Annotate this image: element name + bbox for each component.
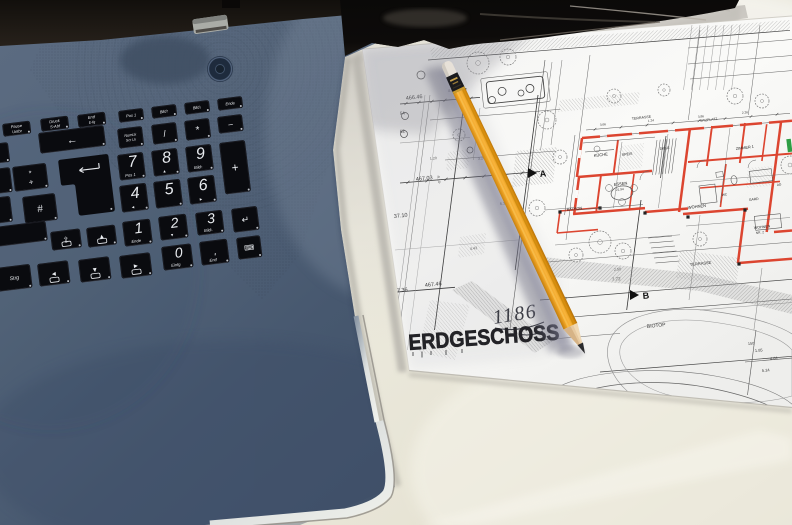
svg-text:►: ► (199, 196, 204, 201)
svg-text:1.85: 1.85 (755, 347, 764, 353)
svg-text:3.66: 3.66 (600, 122, 607, 127)
svg-text:Bild↓: Bild↓ (193, 104, 202, 110)
svg-text:▲: ▲ (162, 168, 167, 173)
svg-text:Bild↑: Bild↑ (160, 108, 169, 114)
svg-text:←: ← (66, 134, 78, 147)
svg-text:3.86: 3.86 (698, 114, 705, 119)
svg-text:1.24: 1.24 (648, 118, 655, 123)
svg-text:2.26: 2.26 (742, 110, 749, 115)
svg-text:150: 150 (748, 341, 755, 346)
svg-text:▲: ▲ (98, 233, 105, 241)
svg-text:⌨: ⌨ (244, 243, 255, 252)
svg-text:▼: ▼ (170, 232, 175, 237)
svg-text:Strg: Strg (9, 275, 19, 282)
svg-text:◄: ◄ (131, 204, 136, 209)
svg-text:E-fg: E-fg (89, 120, 96, 125)
svg-text:⇧: ⇧ (62, 235, 70, 245)
svg-text:↵: ↵ (241, 214, 250, 225)
svg-text:5.24: 5.24 (762, 367, 771, 373)
